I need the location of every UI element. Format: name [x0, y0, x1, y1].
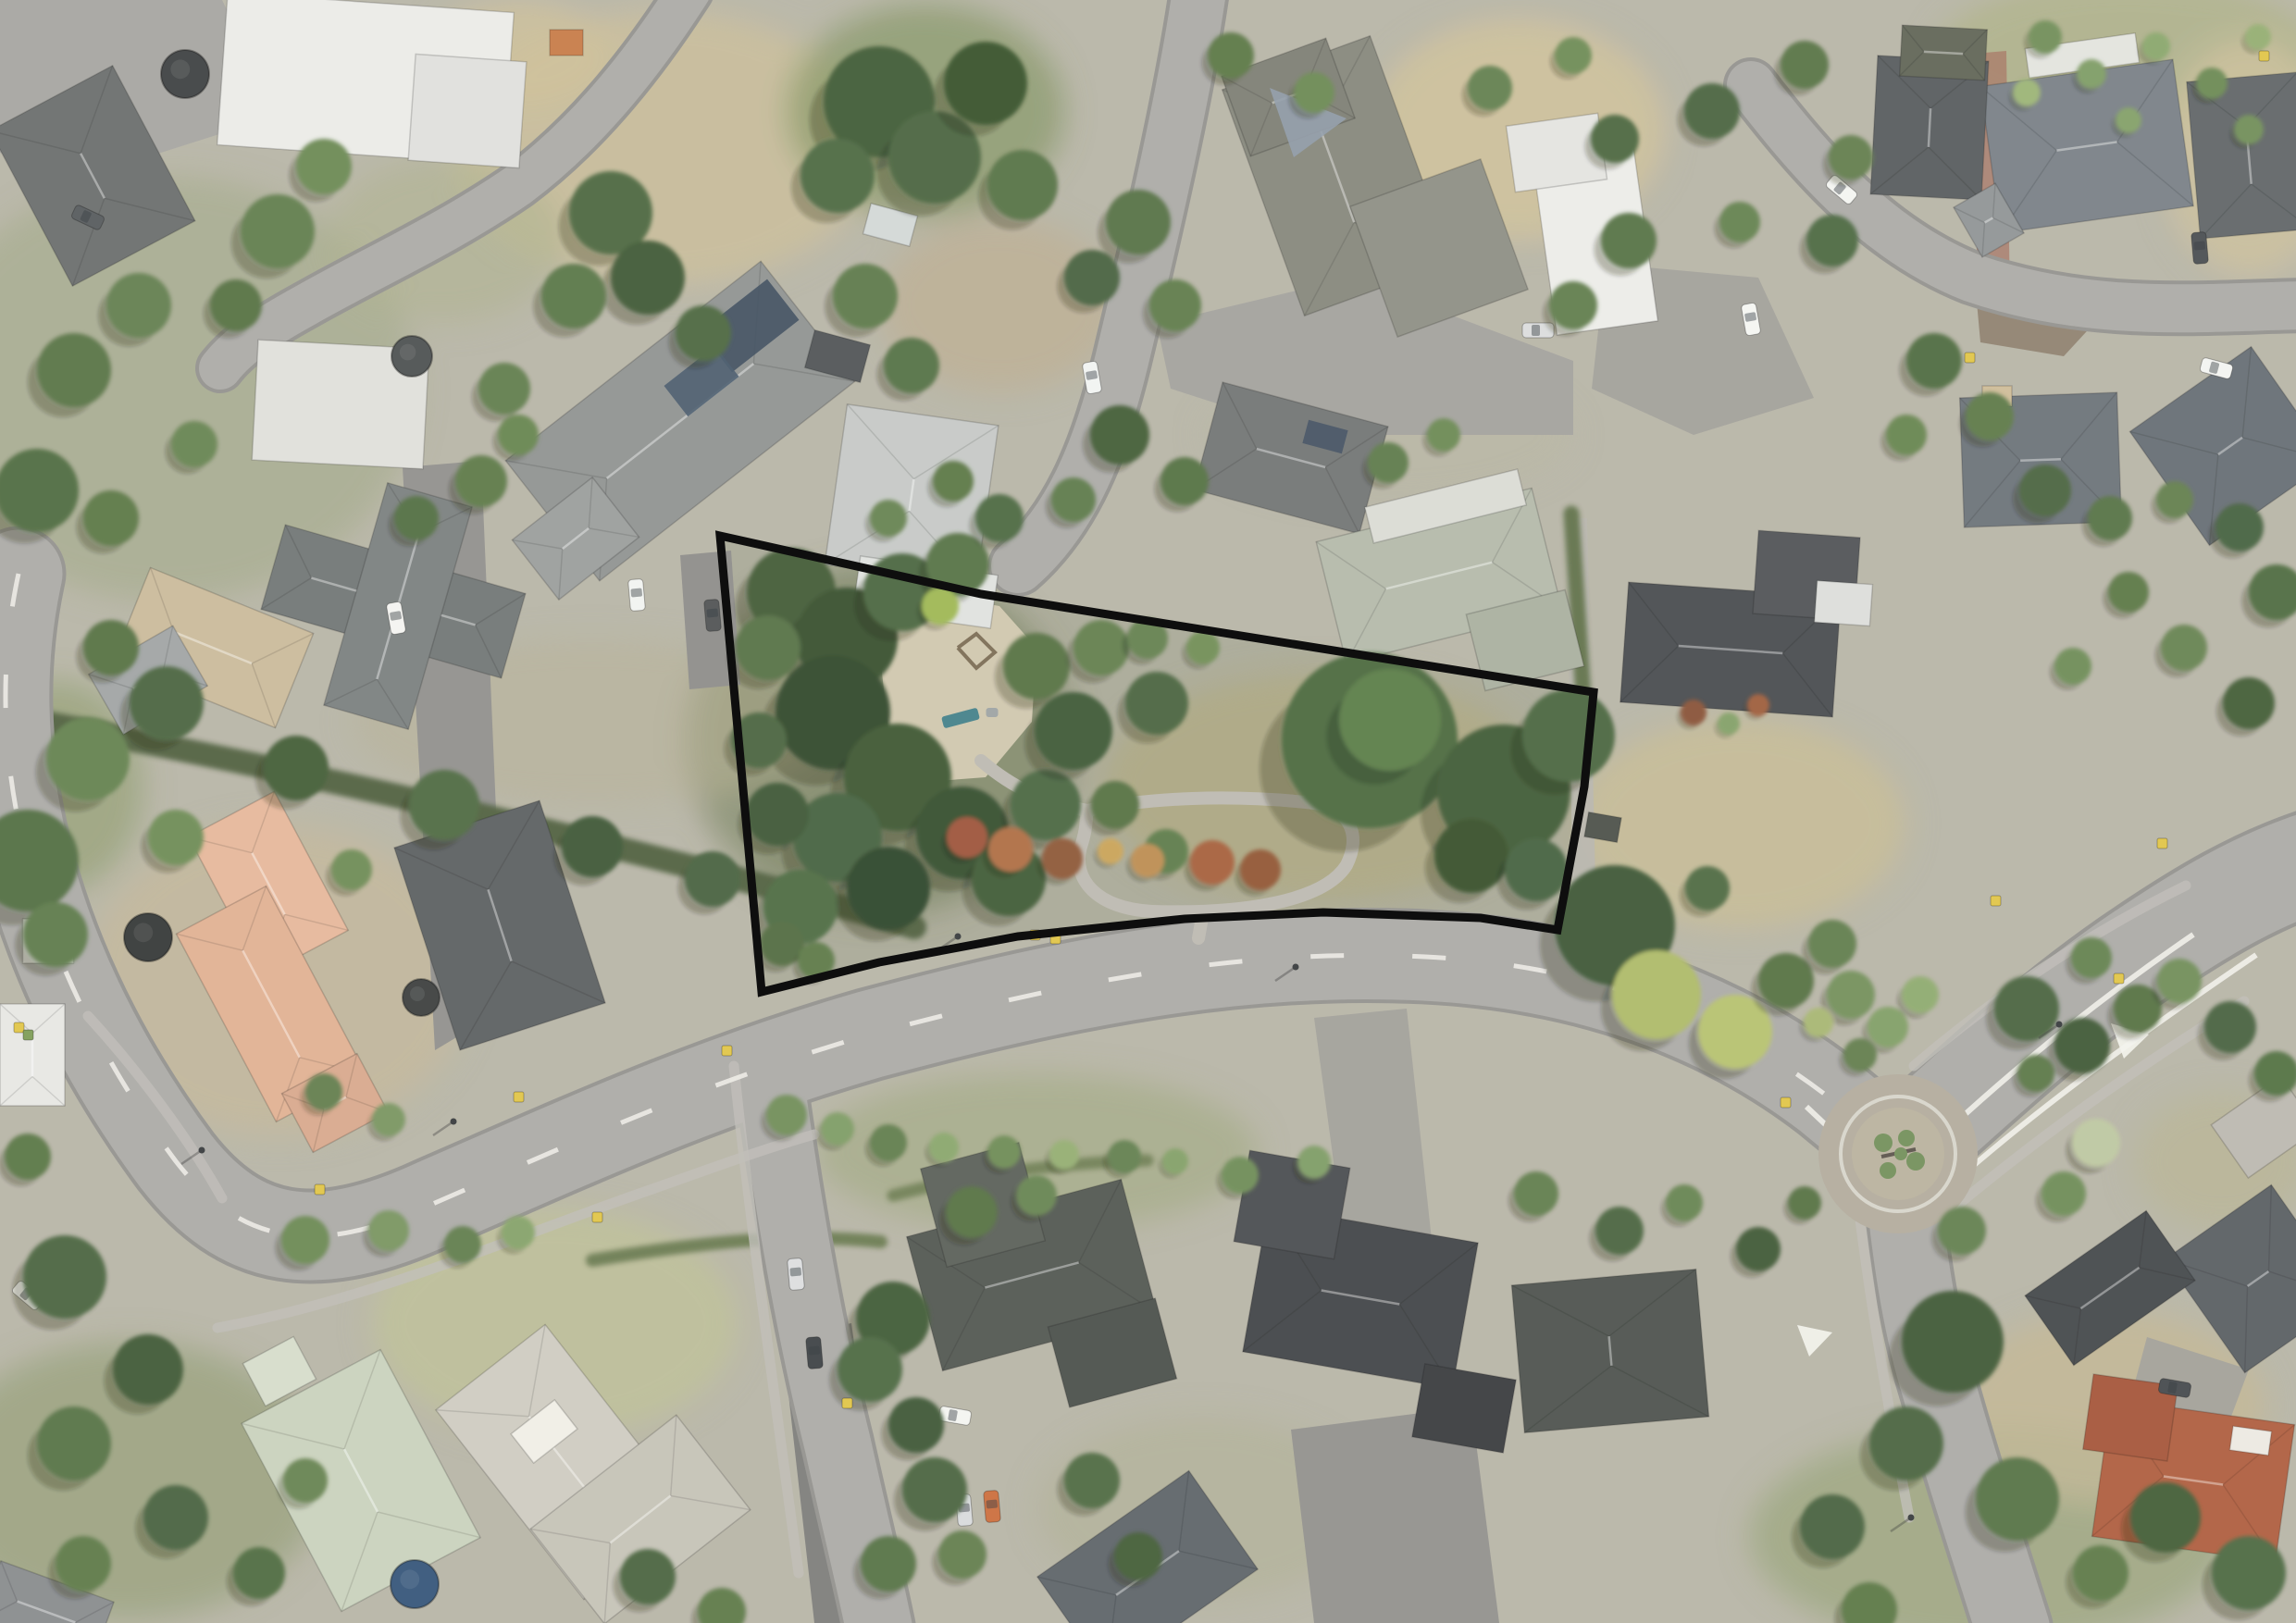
haze-overlay	[0, 0, 2296, 1623]
map-canvas[interactable]	[0, 0, 2296, 1623]
aerial-map-view	[0, 0, 2296, 1623]
